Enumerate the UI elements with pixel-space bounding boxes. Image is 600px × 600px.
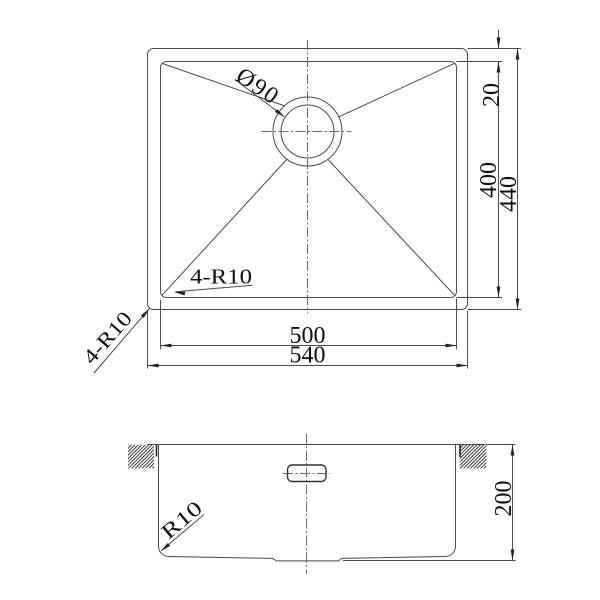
- svg-text:200: 200: [491, 481, 517, 517]
- svg-text:4-R10: 4-R10: [190, 265, 252, 289]
- svg-text:540: 540: [290, 343, 326, 369]
- svg-text:440: 440: [496, 176, 522, 212]
- svg-text:20: 20: [479, 83, 505, 107]
